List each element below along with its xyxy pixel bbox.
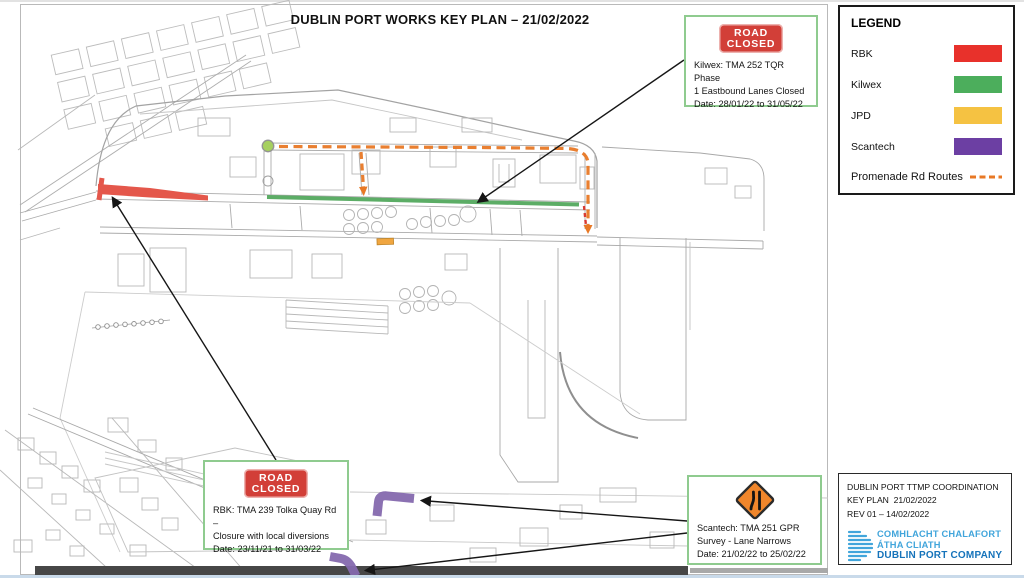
callout-kilwex: ROAD CLOSED Kilwex: TMA 252 TQR Phase 1 … bbox=[684, 15, 818, 107]
legend-label: Scantech bbox=[851, 141, 895, 153]
callout-line: Date: 21/02/22 to 25/02/22 bbox=[697, 548, 812, 561]
road-closed-sign-line2: CLOSED bbox=[719, 39, 783, 50]
legend-label: Promenade Rd Routes bbox=[851, 171, 963, 183]
page-title: DUBLIN PORT WORKS KEY PLAN – 21/02/2022 bbox=[255, 12, 625, 27]
callout-line: Date: 28/01/22 to 31/05/22 bbox=[694, 98, 808, 111]
legend-item-promenade-routes: Promenade Rd Routes bbox=[851, 171, 1002, 183]
dublin-port-key-plan-page: DUBLIN PORT WORKS KEY PLAN – 21/02/2022 … bbox=[0, 0, 1024, 578]
callout-line: Kilwex: TMA 252 TQR Phase bbox=[694, 59, 808, 85]
legend-item-rbk: RBK bbox=[851, 38, 1002, 69]
info-line: DUBLIN PORT TTMP COORDINATION bbox=[847, 481, 1003, 494]
legend-swatch-kilwex bbox=[954, 76, 1002, 93]
logo-line1: COMHLACHT CHALAFORT bbox=[877, 529, 1002, 540]
callout-kilwex-text: Kilwex: TMA 252 TQR Phase 1 Eastbound La… bbox=[686, 57, 816, 115]
roundabout-marker bbox=[263, 141, 274, 152]
legend-item-scantech: Scantech bbox=[851, 131, 1002, 162]
callout-rbk-text: RBK: TMA 239 Tolka Quay Rd – Closure wit… bbox=[205, 502, 347, 560]
arrow-scantech-1 bbox=[422, 501, 688, 522]
dashed-arrow-icon bbox=[969, 171, 1002, 183]
route-jpd-works bbox=[377, 238, 394, 245]
legend-panel: LEGEND RBK Kilwex JPD Scantech Pr bbox=[838, 5, 1015, 195]
road-closed-sign-icon: ROAD CLOSED bbox=[244, 469, 308, 498]
title-block-panel: DUBLIN PORT TTMP COORDINATION KEY PLAN 2… bbox=[838, 473, 1012, 565]
legend-swatch-rbk bbox=[954, 45, 1002, 62]
logo-line2: ÁTHA CLIATH bbox=[877, 540, 1002, 551]
callout-line: Date: 23/11/21 to 31/03/22 bbox=[213, 543, 339, 556]
info-line: REV 01 – 14/02/2022 bbox=[847, 508, 1003, 521]
legend-label: Kilwex bbox=[851, 79, 881, 91]
legend-swatch-scantech bbox=[954, 138, 1002, 155]
route-rbk-closure bbox=[98, 178, 208, 201]
callout-line: Scantech: TMA 251 GPR bbox=[697, 522, 812, 535]
road-closed-sign-line2: CLOSED bbox=[244, 484, 308, 495]
callout-rbk: ROAD CLOSED RBK: TMA 239 Tolka Quay Rd –… bbox=[203, 460, 349, 550]
logo-text: COMHLACHT CHALAFORT ÁTHA CLIATH DUBLIN P… bbox=[877, 529, 1002, 563]
legend-heading: LEGEND bbox=[851, 16, 1002, 30]
info-line: KEY PLAN 21/02/2022 bbox=[847, 494, 1003, 507]
legend-item-kilwex: Kilwex bbox=[851, 69, 1002, 100]
dublin-port-company-logo: COMHLACHT CHALAFORT ÁTHA CLIATH DUBLIN P… bbox=[847, 529, 1003, 563]
lane-narrows-icon bbox=[733, 480, 777, 520]
legend-label: JPD bbox=[851, 110, 871, 122]
legend-label: RBK bbox=[851, 48, 873, 60]
callout-scantech: Scantech: TMA 251 GPR Survey - Lane Narr… bbox=[687, 475, 822, 565]
arrow-kilwex bbox=[478, 60, 684, 202]
callout-scantech-text: Scantech: TMA 251 GPR Survey - Lane Narr… bbox=[689, 520, 820, 565]
callout-line: RBK: TMA 239 Tolka Quay Rd – bbox=[213, 504, 339, 530]
callout-line: Survey - Lane Narrows bbox=[697, 535, 812, 548]
dublin-port-logo-icon bbox=[847, 529, 873, 563]
callout-line: Closure with local diversions bbox=[213, 530, 339, 543]
road-closed-sign-icon: ROAD CLOSED bbox=[719, 24, 783, 53]
logo-line3: DUBLIN PORT COMPANY bbox=[877, 550, 1002, 563]
legend-item-jpd: JPD bbox=[851, 100, 1002, 131]
legend-swatch-jpd bbox=[954, 107, 1002, 124]
callout-line: 1 Eastbound Lanes Closed bbox=[694, 85, 808, 98]
arrow-scantech-2 bbox=[366, 533, 688, 571]
quay-road-bar-light bbox=[690, 568, 828, 573]
route-rbk-east-marks bbox=[584, 206, 586, 226]
arrow-rbk bbox=[113, 198, 277, 461]
route-scantech-survey-1 bbox=[377, 496, 414, 516]
